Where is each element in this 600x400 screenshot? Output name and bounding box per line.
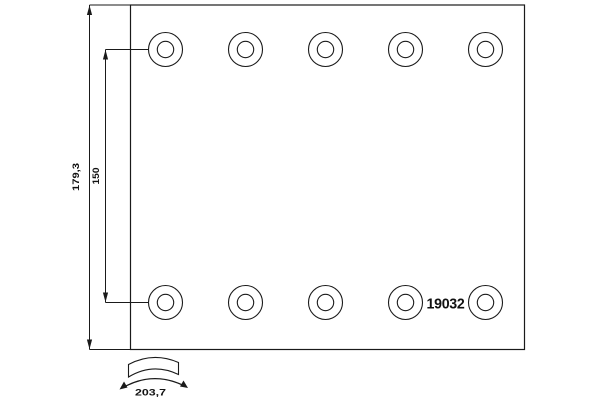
rivet-hole-inner xyxy=(317,41,333,57)
rivet-hole-bottom-5 xyxy=(469,286,503,320)
arrow-up-icon xyxy=(87,5,92,15)
rivet-hole-top-2 xyxy=(229,33,263,67)
rivet-hole-inner xyxy=(477,294,493,310)
rivet-hole-inner xyxy=(397,41,413,57)
arrow-left-icon xyxy=(120,382,128,390)
rivet-hole-bottom-3 xyxy=(309,286,343,320)
rivet-hole-inner xyxy=(317,294,333,310)
rivet-hole-top-5 xyxy=(469,33,503,67)
curved-lining-profile-icon xyxy=(129,357,179,377)
rivet-hole-inner xyxy=(397,294,413,310)
rivet-hole-inner xyxy=(237,294,253,310)
arrow-up-icon xyxy=(103,50,108,60)
height-dimension-label: 179,3 xyxy=(71,163,82,191)
technical-drawing-canvas: 19032 179,3 150 203,7 xyxy=(0,0,600,400)
rivet-hole-bottom-4 xyxy=(389,286,423,320)
rivet-hole-inner xyxy=(237,41,253,57)
lining-plate-group: 19032 xyxy=(131,5,525,350)
rivet-hole-top-1 xyxy=(149,33,183,67)
curvature-symbol: 203,7 xyxy=(120,357,189,398)
arrow-down-icon xyxy=(87,340,92,350)
rivet-hole-inner xyxy=(157,294,173,310)
arc-length-dimension-label: 203,7 xyxy=(135,388,166,399)
rivet-hole-top-4 xyxy=(389,33,423,67)
rivet-hole-inner xyxy=(157,41,173,57)
row-spacing-dimension-label: 150 xyxy=(91,168,102,185)
rivet-hole-bottom-2 xyxy=(229,286,263,320)
arrow-down-icon xyxy=(103,293,108,303)
rivet-hole-bottom-1 xyxy=(149,286,183,320)
brake-lining-drawing: 19032 179,3 150 203,7 xyxy=(0,0,600,400)
rivet-hole-inner xyxy=(477,41,493,57)
arc-length-arrow xyxy=(123,379,185,388)
part-number-label: 19032 xyxy=(427,297,465,313)
rivet-hole-top-3 xyxy=(309,33,343,67)
